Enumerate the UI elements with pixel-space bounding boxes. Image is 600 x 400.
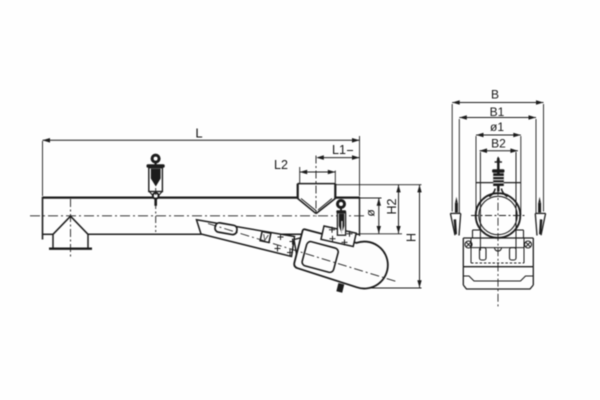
svg-text:ø1: ø1 bbox=[490, 120, 504, 134]
svg-text:B2: B2 bbox=[491, 137, 506, 151]
svg-text:H2: H2 bbox=[385, 198, 399, 214]
svg-text:B: B bbox=[491, 88, 499, 102]
svg-text:B1: B1 bbox=[490, 105, 505, 119]
svg-text:L: L bbox=[195, 126, 202, 141]
svg-text:H: H bbox=[405, 233, 419, 242]
svg-text:L2: L2 bbox=[274, 158, 288, 172]
svg-text:ø: ø bbox=[364, 209, 378, 217]
svg-text:L1: L1 bbox=[332, 143, 346, 157]
